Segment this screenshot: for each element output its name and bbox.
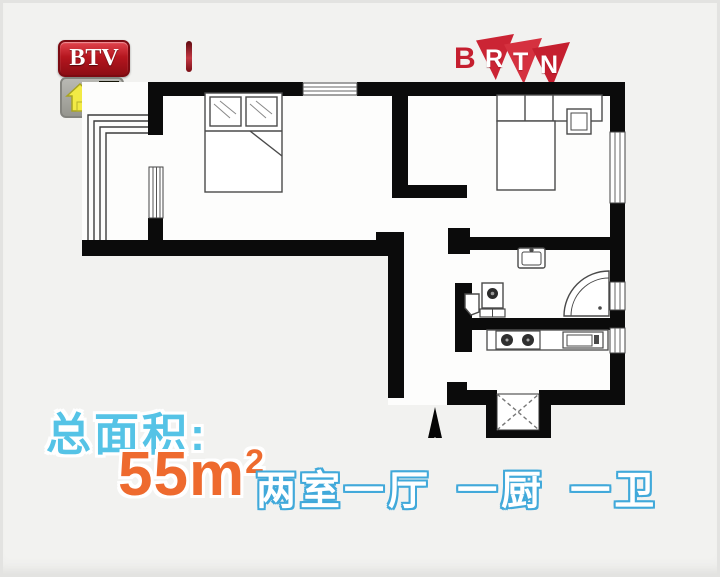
washing-machine-icon [480, 283, 505, 317]
window-kitchen-icon [610, 328, 625, 353]
pillow-icon [246, 97, 277, 126]
double-bed-left-icon [205, 93, 282, 192]
window-top-icon [303, 83, 357, 95]
kitchen-fixtures [487, 330, 608, 350]
area-unit: m [189, 440, 245, 509]
area-value: 55m2 [118, 444, 264, 506]
red-tick-mark [186, 41, 192, 72]
area-number: 55 [118, 440, 189, 509]
brtn-letter-n: N [540, 51, 558, 80]
kitchen-sink-icon [563, 332, 603, 348]
brtn-letter-t: T [513, 48, 528, 77]
brtn-letter-r: R [485, 45, 503, 74]
washbasin-icon [518, 248, 545, 268]
entrance-arrow-icon [426, 407, 444, 438]
duct-shaft-icon [497, 394, 539, 430]
floor-plan [80, 78, 630, 438]
window-right-bedroom-icon [610, 132, 625, 203]
gas-stove-icon [496, 331, 540, 349]
window-bathroom-icon [610, 282, 625, 310]
brtn-letter-b: B [454, 42, 476, 76]
room-layout-text: 两室一厅 一厨 一卫 [256, 458, 658, 516]
btv-logo: BTV [58, 40, 130, 77]
btv-logo-text: BTV [69, 45, 118, 72]
window-left-icon [149, 167, 163, 218]
tv-frame: BTV 高 温 B R T N [0, 0, 720, 577]
pillow-icon [210, 97, 241, 126]
